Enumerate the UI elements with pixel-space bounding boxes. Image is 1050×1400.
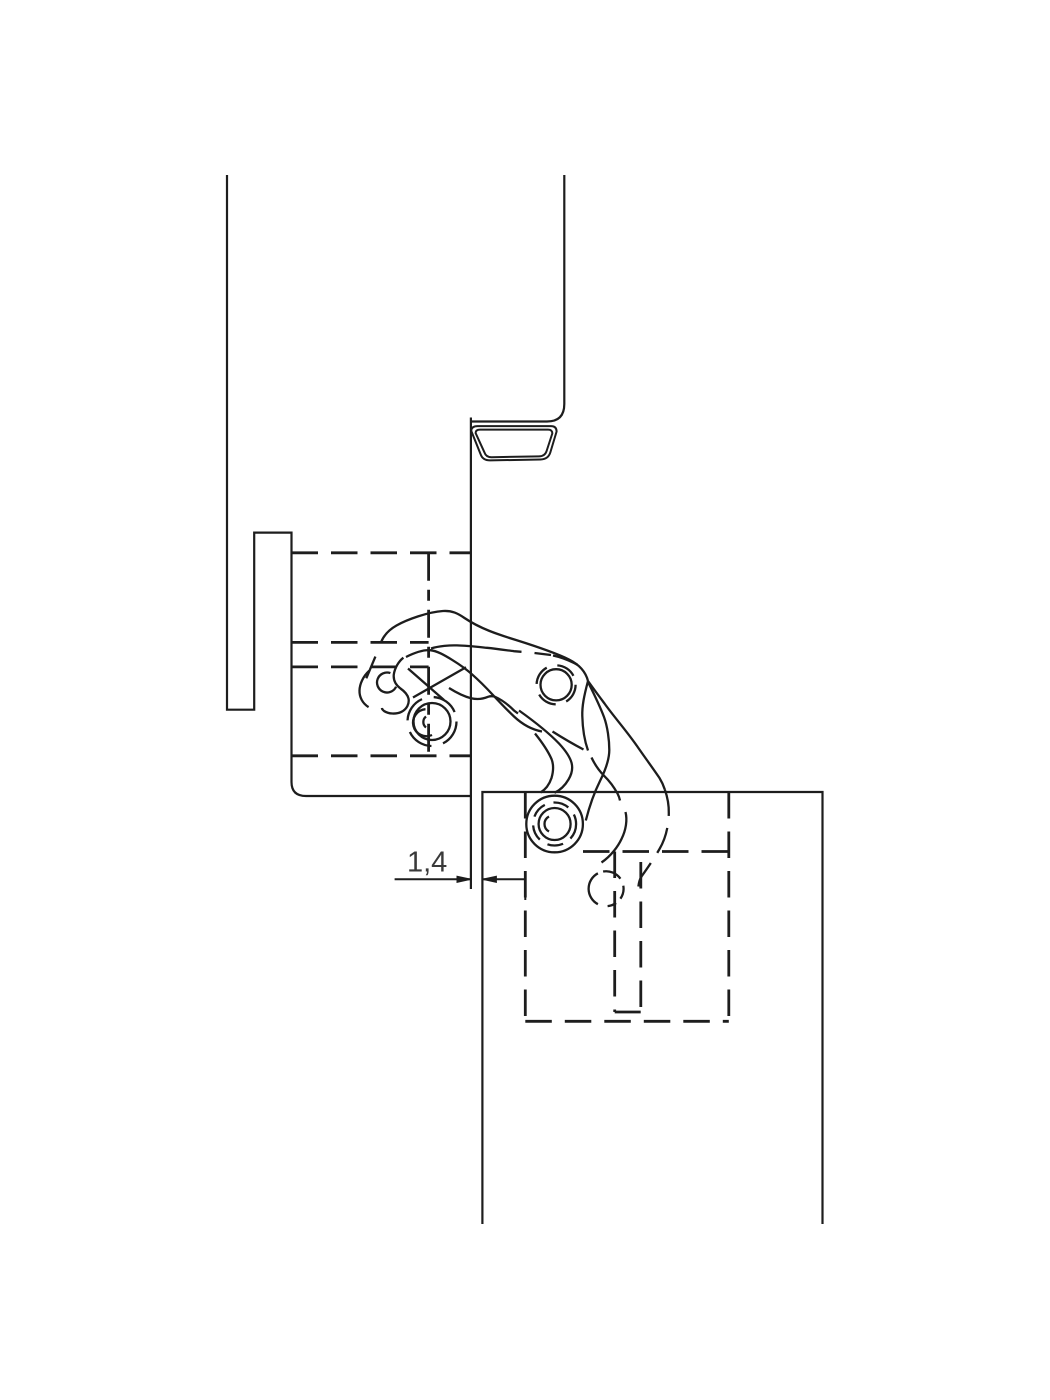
svg-text:1,4: 1,4	[407, 847, 447, 879]
